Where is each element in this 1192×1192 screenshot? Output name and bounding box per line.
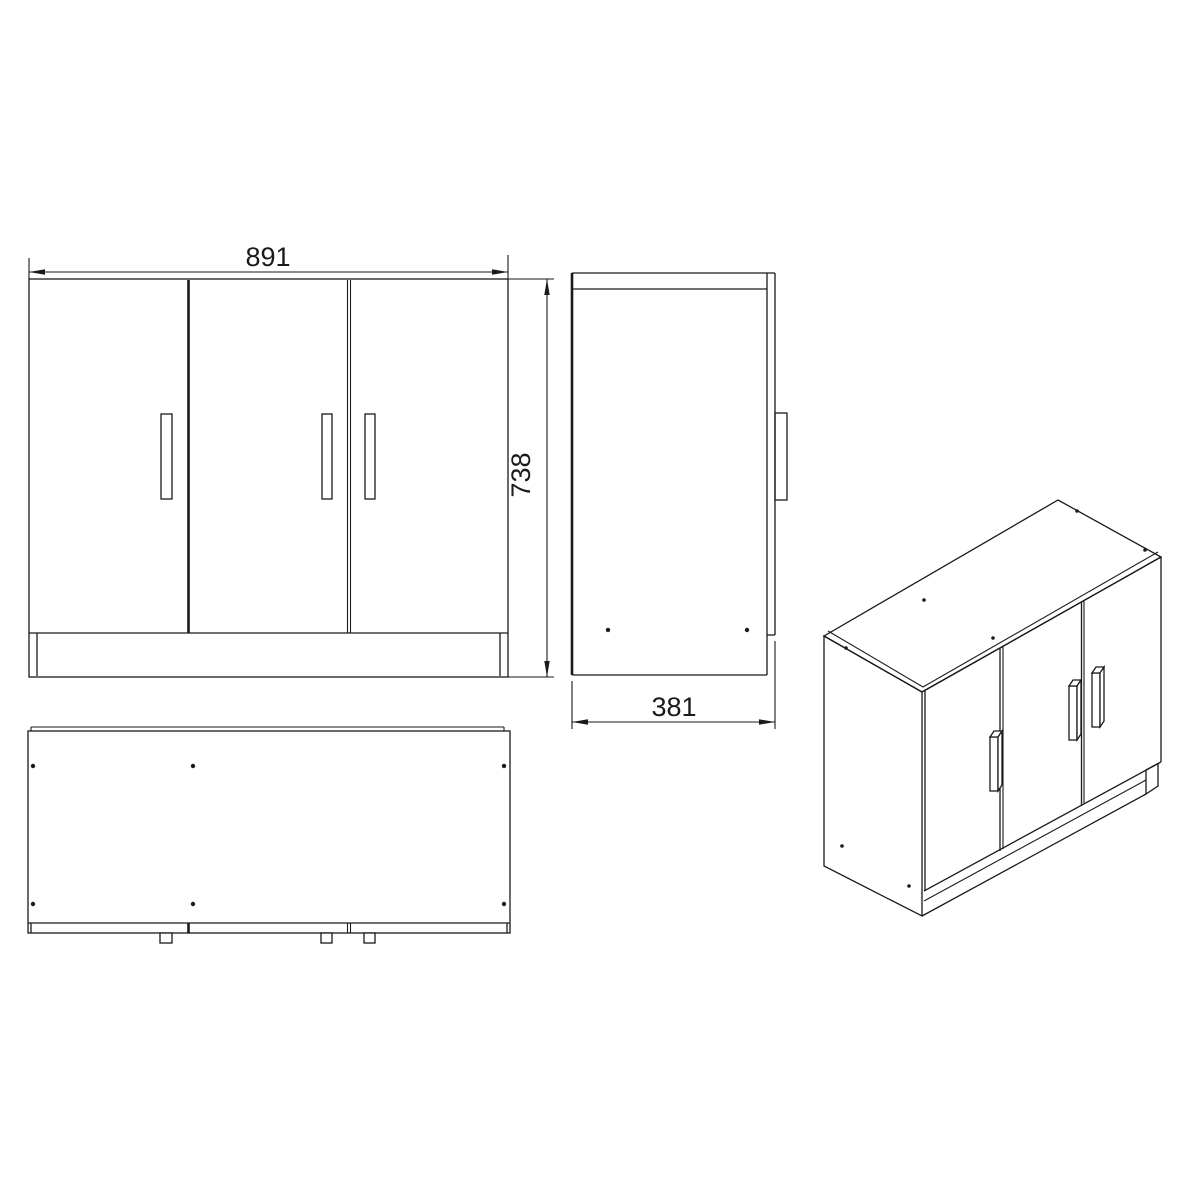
fitting-dot — [31, 764, 35, 768]
iso-middle-door-handle — [1069, 680, 1081, 740]
dimension-depth: 381 — [572, 641, 775, 729]
iso-right-foot — [1146, 764, 1158, 795]
side-view — [572, 273, 787, 675]
handle-bar — [1092, 673, 1100, 727]
arrow-up-icon — [544, 279, 549, 295]
fitting-dot — [191, 764, 195, 768]
top-handle-tab — [364, 933, 375, 943]
technical-drawing-canvas: 891 738 381 — [0, 0, 1192, 1192]
front-right-door-handle — [365, 414, 375, 499]
fitting-dot — [745, 628, 749, 632]
front-view — [29, 279, 508, 677]
fitting-dot — [840, 844, 844, 848]
iso-top-face — [824, 500, 1161, 692]
handle-side — [1100, 667, 1104, 727]
arrow-right-icon — [492, 269, 508, 274]
fitting-dot — [844, 646, 848, 650]
fitting-dot — [991, 636, 995, 640]
fitting-dot — [502, 764, 506, 768]
front-cabinet-outline — [29, 279, 508, 677]
arrow-right-icon — [759, 719, 775, 724]
iso-doors-bottom-edge — [924, 762, 1161, 891]
isometric-view — [824, 500, 1161, 916]
dimension-width: 891 — [29, 242, 508, 279]
fitting-dot — [606, 628, 610, 632]
handle-bar — [1069, 686, 1077, 740]
handle-bar — [990, 737, 998, 791]
fitting-dot — [1143, 548, 1147, 552]
iso-right-door-handle — [1092, 667, 1104, 727]
fitting-dot — [1075, 509, 1079, 513]
front-middle-door-handle — [322, 414, 332, 499]
fitting-dot — [31, 902, 35, 906]
arrow-down-icon — [544, 661, 549, 677]
top-handle-tab — [160, 933, 172, 943]
drawing-sheet: 891 738 381 — [0, 0, 1192, 1192]
dimension-height: 738 — [506, 279, 554, 677]
dimension-depth-label: 381 — [651, 692, 696, 722]
side-handle-profile — [775, 413, 787, 500]
iso-left-door-handle — [990, 731, 1002, 791]
top-handle-tab — [321, 933, 332, 943]
fitting-dot — [922, 598, 926, 602]
front-left-door-handle — [161, 414, 172, 499]
iso-front-top-edge — [922, 557, 1161, 692]
dimension-width-label: 891 — [245, 242, 290, 272]
fitting-dot — [502, 902, 506, 906]
handle-side — [1077, 680, 1081, 740]
top-outline — [28, 731, 510, 933]
handle-side — [998, 731, 1002, 791]
dimension-height-label: 738 — [506, 452, 536, 497]
iso-bottom-shelf-edge — [924, 780, 1146, 901]
top-view — [28, 727, 510, 943]
iso-base-bottom-edge — [922, 794, 1146, 916]
fitting-dot — [907, 884, 911, 888]
arrow-left-icon — [572, 719, 588, 724]
arrow-left-icon — [29, 269, 45, 274]
fitting-dot — [191, 902, 195, 906]
